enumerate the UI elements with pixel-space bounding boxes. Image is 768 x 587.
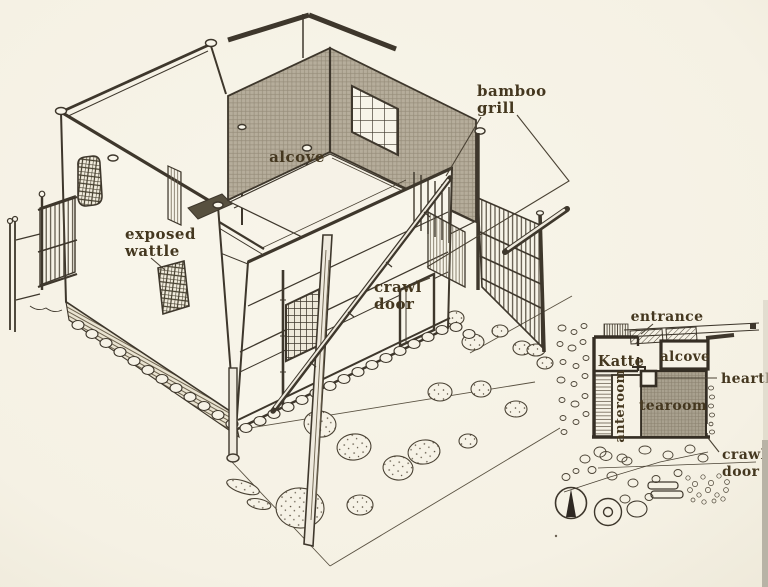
teahouse-figure: bamboo grill alcove exposed wattle crawl…: [0, 0, 768, 587]
lattice-window: [78, 156, 102, 206]
partition-window: [168, 166, 181, 225]
alcove-label: alcove: [269, 148, 325, 166]
exposed-wattle-label: exposed: [125, 225, 196, 243]
teahouse-illustration: bamboo grill alcove exposed wattle crawl…: [0, 0, 768, 587]
plan-crawl-door-label-2: door: [722, 464, 760, 480]
bamboo-grill-label: bamboo: [477, 82, 547, 100]
plan-katte-label: Katte: [598, 353, 645, 370]
plan-anteroom-label: anteroom: [613, 369, 628, 442]
plan-entrance-label: entrance: [631, 309, 704, 325]
plan-veranda: [595, 375, 612, 437]
plan-tearoom-label: tearoom: [639, 398, 707, 414]
plan-hearth: [641, 371, 656, 386]
exposed-wattle-label-2: wattle: [124, 242, 180, 260]
bamboo-grill-label-2: grill: [477, 99, 515, 117]
exposed-wattle-patch: [158, 261, 189, 314]
page-edge-upper: [763, 300, 768, 440]
crawl-door-label-2: door: [374, 295, 415, 313]
plan-hearth-label: hearth: [721, 371, 768, 387]
plan-alcove-label: alcove: [660, 349, 710, 365]
crawl-door-label: crawl: [374, 278, 422, 296]
page-edge: [762, 440, 768, 587]
plan-crawl-door-label: crawl: [722, 447, 766, 463]
speck: [555, 535, 557, 537]
corner-post-buried: [229, 368, 237, 456]
